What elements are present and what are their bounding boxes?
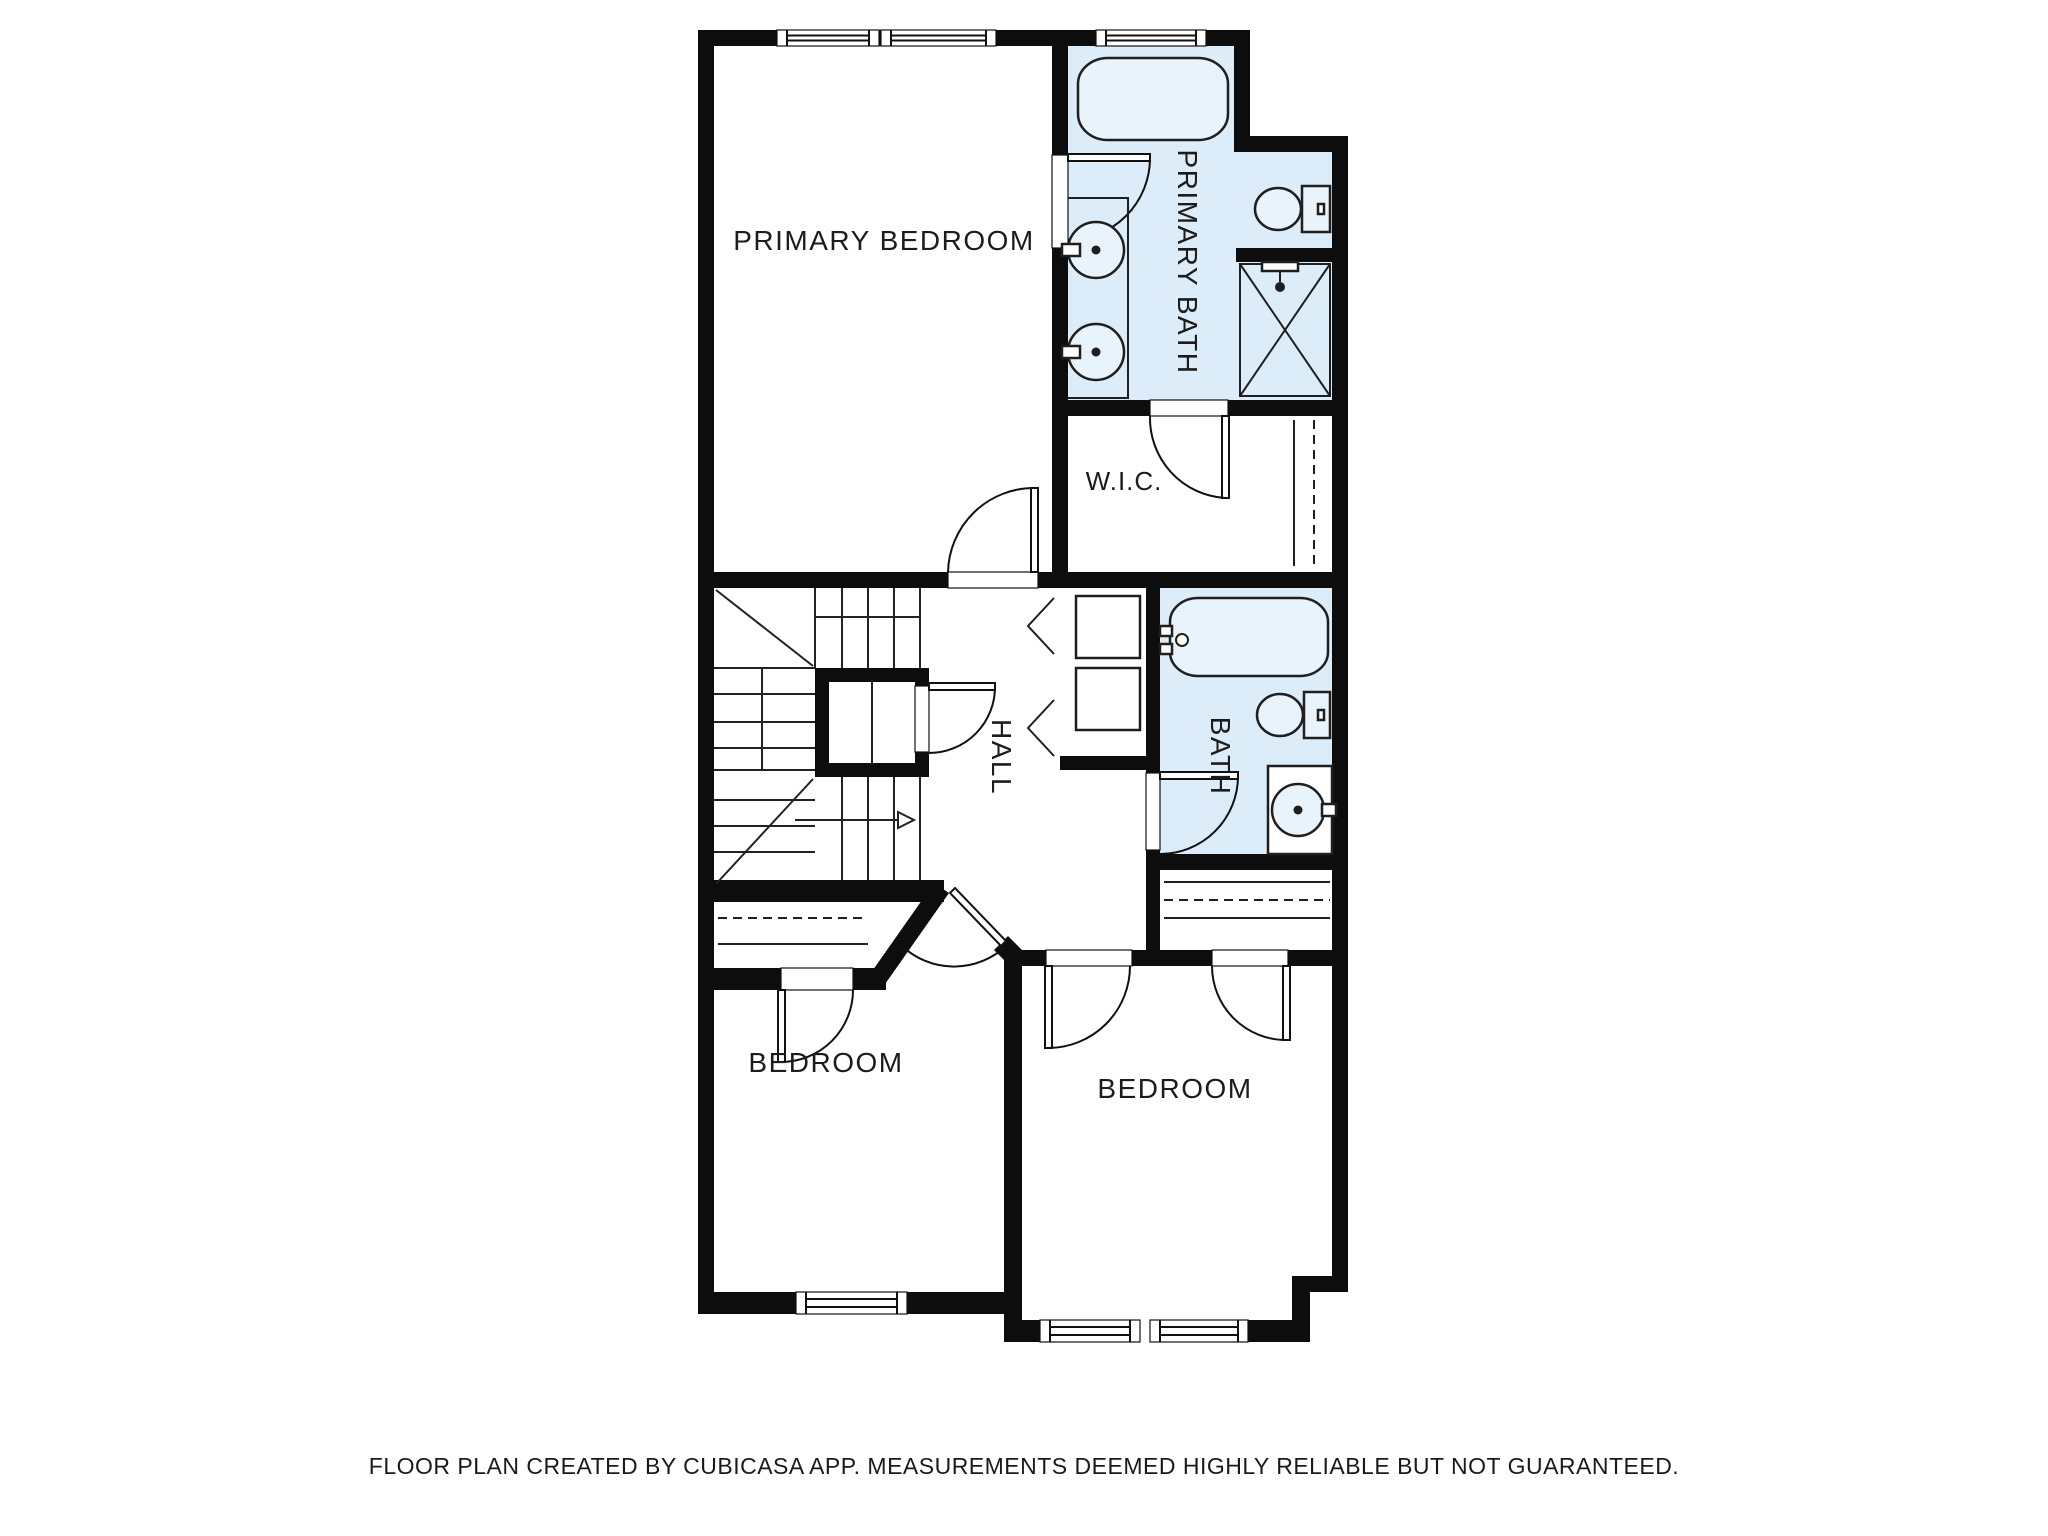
room-label-hall: HALL bbox=[986, 719, 1017, 795]
wall-segment bbox=[698, 572, 948, 588]
staircase bbox=[714, 588, 995, 884]
wall-segment bbox=[1132, 950, 1212, 966]
wall-segment bbox=[1234, 136, 1348, 152]
door-opening bbox=[1046, 950, 1132, 966]
bedroom-right-closet-door bbox=[1212, 966, 1290, 1040]
wall-segment bbox=[1332, 136, 1348, 1292]
room-label-bedroom-left: BEDROOM bbox=[748, 1047, 903, 1078]
window-icon bbox=[777, 30, 879, 46]
wall-segment bbox=[1146, 588, 1160, 773]
wall-segment bbox=[907, 1292, 1022, 1314]
toilet-icon bbox=[1257, 692, 1330, 738]
wall-segment bbox=[1288, 950, 1348, 966]
toilet-icon bbox=[1255, 186, 1330, 232]
wall-segment bbox=[1146, 854, 1348, 870]
wall-segment bbox=[1004, 950, 1022, 1342]
door-swing-arc bbox=[929, 687, 995, 753]
bathtub-icon bbox=[1078, 58, 1228, 140]
door-opening bbox=[1146, 773, 1160, 850]
wall-segment bbox=[698, 968, 781, 990]
stair-door-leaf bbox=[929, 683, 995, 690]
room-label-primary-bedroom: PRIMARY BEDROOM bbox=[733, 225, 1035, 256]
wall-segment bbox=[1052, 400, 1150, 416]
wall-segment bbox=[698, 30, 714, 1314]
wall-segment bbox=[1228, 400, 1348, 416]
window-icon bbox=[796, 1292, 907, 1314]
floor-plan-svg: PRIMARY BEDROOM PRIMARY BATH W.I.C. HALL… bbox=[0, 0, 2048, 1536]
room-label-primary-bath: PRIMARY BATH bbox=[1172, 150, 1203, 375]
window-icon bbox=[1040, 1320, 1140, 1342]
wall-segment bbox=[1292, 1276, 1348, 1292]
sink-vanity-icon bbox=[1268, 766, 1336, 854]
bathtub-icon bbox=[1160, 598, 1328, 676]
room-label-wic: W.I.C. bbox=[1086, 466, 1163, 496]
bedroom-right-entry-door bbox=[1045, 966, 1130, 1048]
wall-segment bbox=[1038, 572, 1348, 588]
wall-segment bbox=[1060, 756, 1160, 770]
room-label-bath: BATH bbox=[1205, 717, 1236, 796]
wall-segment bbox=[698, 880, 944, 902]
footer-disclaimer: FLOOR PLAN CREATED BY CUBICASA APP. MEAS… bbox=[369, 1453, 1679, 1479]
window-icon bbox=[881, 30, 996, 46]
laundry-niche bbox=[1028, 596, 1140, 756]
opening-chevron-icon bbox=[1028, 700, 1054, 756]
door-opening bbox=[781, 968, 853, 990]
window-icon bbox=[1150, 1320, 1248, 1342]
wic-rod bbox=[1294, 420, 1314, 566]
floor-plan-page: PRIMARY BEDROOM PRIMARY BATH W.I.C. HALL… bbox=[0, 0, 2048, 1536]
door-opening bbox=[948, 572, 1038, 588]
wall-segment bbox=[1234, 30, 1250, 152]
closet-right-shelves bbox=[1164, 882, 1330, 918]
primary-bedroom-door bbox=[948, 488, 1038, 572]
washer-icon bbox=[1076, 596, 1140, 658]
wall-segment bbox=[698, 1292, 796, 1314]
wall-segment bbox=[1004, 1320, 1040, 1342]
opening-chevron-icon bbox=[1028, 598, 1054, 654]
wall-segment bbox=[1236, 248, 1332, 262]
door-opening bbox=[1150, 400, 1228, 416]
room-label-bedroom-right: BEDROOM bbox=[1097, 1073, 1252, 1104]
door-opening bbox=[915, 686, 929, 752]
door-opening bbox=[1212, 950, 1288, 966]
door-opening bbox=[1052, 155, 1068, 248]
window-icon bbox=[1096, 30, 1206, 46]
dryer-icon bbox=[1076, 668, 1140, 730]
wall-segment bbox=[1052, 46, 1068, 155]
closet-left-shelves bbox=[718, 918, 868, 944]
